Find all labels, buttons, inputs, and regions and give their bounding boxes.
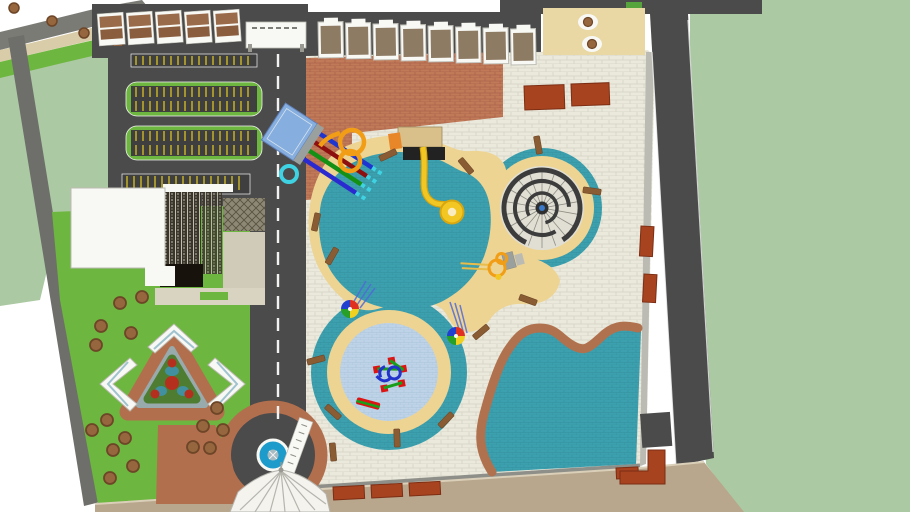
entry-house [126, 11, 154, 45]
site-plan-canvas [0, 0, 910, 512]
tree-icon [9, 3, 19, 13]
tree-icon [114, 297, 126, 309]
cabana [400, 21, 426, 61]
cabana [455, 23, 481, 63]
brick-planter [639, 226, 654, 257]
tree-icon [86, 424, 98, 436]
roof-canopy-strip [163, 184, 233, 192]
tree-icon [125, 327, 137, 339]
footbridge [329, 443, 337, 461]
tree-icon [47, 16, 57, 26]
cabana [510, 25, 536, 65]
flower-cluster [168, 359, 177, 368]
restaurant-terrace [223, 232, 265, 290]
brick-planter [643, 274, 657, 303]
restaurant-mid-roof [202, 192, 222, 274]
tree-icon [90, 339, 102, 351]
entry-house [97, 12, 125, 46]
flower-cluster [151, 390, 160, 399]
umbrella-slide [447, 327, 465, 345]
tree-icon [588, 40, 597, 49]
waterpark-site-plan [0, 0, 910, 512]
patio-planting [200, 292, 228, 300]
right-field [690, 0, 910, 512]
tree-icon [127, 460, 139, 472]
brick-planter [371, 483, 403, 498]
entry-house [213, 9, 241, 43]
tree-icon [107, 444, 119, 456]
tree-icon [217, 424, 229, 436]
brick-planter [571, 83, 610, 106]
road-turnout [640, 412, 672, 448]
flower-cluster [185, 390, 194, 399]
cabana [428, 22, 454, 62]
pergola-lattice [223, 198, 265, 231]
tree-icon [584, 18, 593, 27]
white-building [71, 188, 165, 268]
brick-planter [409, 481, 441, 496]
tree-icon [211, 402, 223, 414]
gate-canopy [246, 22, 306, 48]
umbrella-slide [341, 300, 359, 318]
cabana [373, 20, 399, 60]
gate-post [300, 44, 304, 52]
tree-icon [95, 320, 107, 332]
entry-house [184, 10, 212, 44]
footbridge [394, 429, 401, 447]
tree-icon [204, 442, 216, 454]
cabana [318, 18, 344, 58]
restaurant-striped-roof [165, 188, 201, 268]
tree-icon [187, 441, 199, 453]
tree-icon [136, 291, 148, 303]
tree-icon [79, 28, 89, 38]
spiral-hub-pool [539, 205, 545, 211]
tree-icon [119, 432, 131, 444]
funnel-donut-hole [448, 208, 456, 216]
flower-cluster [165, 376, 179, 390]
tree-icon [101, 414, 113, 426]
entry-house-row [97, 9, 241, 46]
cabana [345, 19, 371, 59]
tube-slide-deck [398, 127, 442, 147]
tube-slide-stairs [388, 132, 402, 150]
entrance-gate [246, 22, 306, 52]
cabana [483, 24, 509, 64]
tree-icon [197, 420, 209, 432]
brick-planter [333, 485, 365, 500]
tree-icon [104, 472, 116, 484]
gate-post [248, 44, 252, 52]
white-building-wing [145, 266, 175, 286]
entry-house [155, 10, 183, 44]
brick-planter [524, 85, 565, 110]
